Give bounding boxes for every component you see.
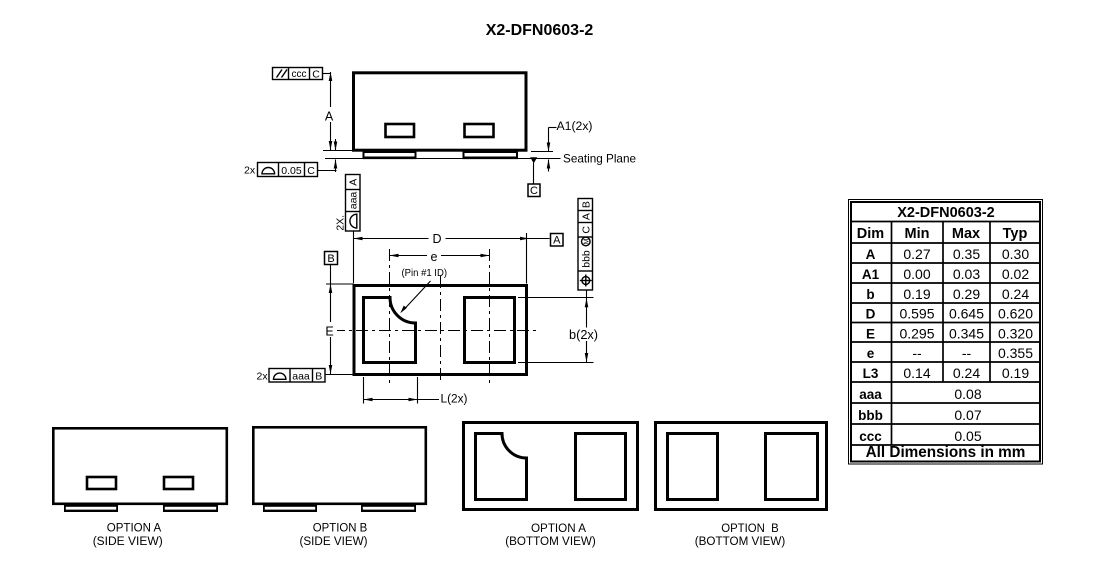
svg-text:b: b xyxy=(866,287,874,302)
svg-text:0.24: 0.24 xyxy=(953,365,980,381)
svg-text:C: C xyxy=(530,185,538,197)
svg-text:0.00: 0.00 xyxy=(903,266,930,282)
svg-text:ccc: ccc xyxy=(292,69,307,80)
svg-text:L3: L3 xyxy=(863,366,879,381)
svg-text:A: A xyxy=(348,179,360,186)
svg-text:0.02: 0.02 xyxy=(1002,266,1029,282)
svg-text:Seating Plane: Seating Plane xyxy=(563,152,636,166)
svg-text:A: A xyxy=(325,110,334,124)
svg-text:0.355: 0.355 xyxy=(998,345,1033,361)
svg-text:X2-DFN0603-2: X2-DFN0603-2 xyxy=(897,205,995,221)
svg-text:A1: A1 xyxy=(862,267,880,282)
svg-text:b(2x): b(2x) xyxy=(569,328,598,342)
svg-text:0.07: 0.07 xyxy=(954,407,981,423)
svg-text:C: C xyxy=(307,165,315,177)
svg-text:(BOTTOM VIEW): (BOTTOM VIEW) xyxy=(505,534,596,548)
svg-text:0.295: 0.295 xyxy=(899,326,934,342)
svg-text:0.30: 0.30 xyxy=(1002,246,1029,262)
svg-text:E: E xyxy=(866,327,875,342)
svg-text:(Pin #1 ID): (Pin #1 ID) xyxy=(402,268,448,279)
svg-text:bbb: bbb xyxy=(580,250,592,268)
svg-text:D: D xyxy=(432,232,441,246)
svg-text:C: C xyxy=(580,226,592,234)
svg-text:--: -- xyxy=(912,345,922,361)
svg-text:0.27: 0.27 xyxy=(903,246,930,262)
svg-text:D: D xyxy=(866,307,876,322)
svg-text:0.19: 0.19 xyxy=(1002,365,1029,381)
svg-text:L(2x): L(2x) xyxy=(441,392,468,406)
svg-text:0.595: 0.595 xyxy=(899,306,934,322)
svg-text:OPTION B: OPTION B xyxy=(313,520,368,534)
svg-text:OPTION A: OPTION A xyxy=(107,520,162,534)
svg-text:All Dimensions in mm: All Dimensions in mm xyxy=(866,444,1026,461)
svg-text:0.345: 0.345 xyxy=(949,326,984,342)
svg-text:e: e xyxy=(867,346,875,361)
svg-text:B: B xyxy=(580,201,592,208)
svg-text:e: e xyxy=(431,250,438,264)
svg-text:C: C xyxy=(312,68,320,80)
svg-text:0.645: 0.645 xyxy=(949,306,984,322)
svg-text:Max: Max xyxy=(952,226,980,242)
svg-text:E: E xyxy=(325,325,333,339)
svg-text:2x: 2x xyxy=(257,370,269,382)
svg-text:M: M xyxy=(582,239,591,245)
svg-text:0.620: 0.620 xyxy=(998,306,1033,322)
svg-text:(SIDE VIEW): (SIDE VIEW) xyxy=(300,534,368,548)
svg-text:0.29: 0.29 xyxy=(953,286,980,302)
svg-text:OPTION A: OPTION A xyxy=(531,521,587,535)
svg-text:bbb: bbb xyxy=(858,408,883,423)
svg-text:A: A xyxy=(866,247,876,262)
svg-text:ccc: ccc xyxy=(859,429,882,444)
svg-text:X2-DFN0603-2: X2-DFN0603-2 xyxy=(486,22,594,39)
svg-text:0.08: 0.08 xyxy=(954,386,981,402)
svg-text:0.03: 0.03 xyxy=(953,266,980,282)
svg-text:OPTION B: OPTION B xyxy=(721,521,779,535)
svg-text:A: A xyxy=(580,213,592,220)
svg-text:--: -- xyxy=(962,345,972,361)
svg-text:B: B xyxy=(327,253,334,265)
svg-text:B: B xyxy=(315,370,322,382)
svg-text:0.14: 0.14 xyxy=(903,365,930,381)
svg-text:0.35: 0.35 xyxy=(953,246,980,262)
svg-text:0.24: 0.24 xyxy=(1002,286,1029,302)
svg-text:aaa: aaa xyxy=(292,370,310,382)
svg-text:0.19: 0.19 xyxy=(903,286,930,302)
svg-text:0.320: 0.320 xyxy=(998,326,1033,342)
svg-text:(SIDE VIEW): (SIDE VIEW) xyxy=(93,534,163,548)
svg-text:(BOTTOM VIEW): (BOTTOM VIEW) xyxy=(695,534,786,548)
svg-text:2x: 2x xyxy=(244,164,256,176)
svg-text:aaa: aaa xyxy=(859,387,882,402)
svg-text:Min: Min xyxy=(905,226,930,242)
svg-text:Dim: Dim xyxy=(857,226,884,242)
svg-text:2X.: 2X. xyxy=(335,215,347,231)
svg-text:aaa: aaa xyxy=(348,192,360,210)
svg-text:0.05: 0.05 xyxy=(954,428,981,444)
svg-text:A1(2x): A1(2x) xyxy=(557,119,593,133)
svg-text:Typ: Typ xyxy=(1003,226,1028,242)
svg-text:0.05: 0.05 xyxy=(281,165,302,177)
svg-text:A: A xyxy=(553,235,561,247)
